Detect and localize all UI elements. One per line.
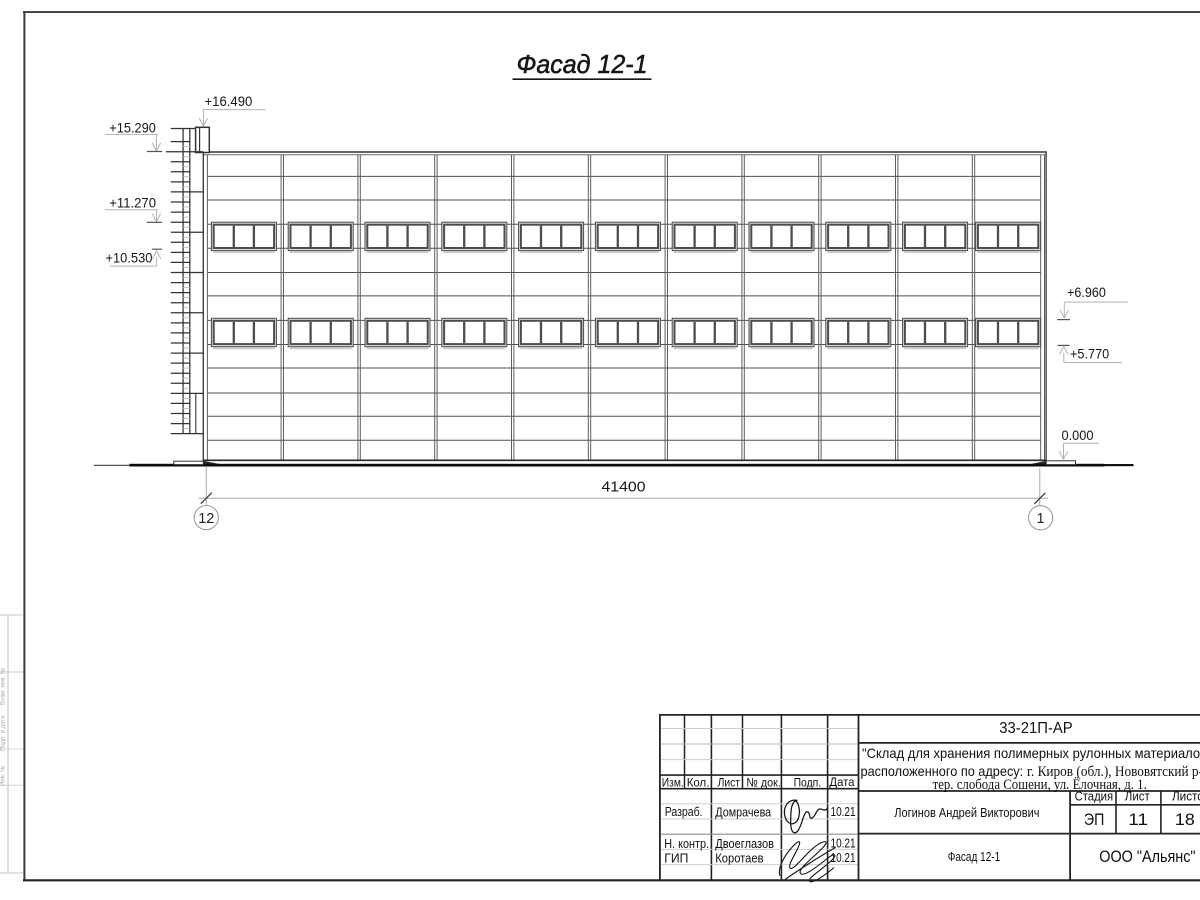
svg-text:Логинов Андрей Викторович: Логинов Андрей Викторович [894, 805, 1039, 820]
svg-text:Подп.: Подп. [794, 775, 822, 789]
svg-text:ООО "Альянс": ООО "Альянс" [1099, 848, 1195, 866]
svg-text:1: 1 [1037, 511, 1045, 527]
svg-text:0.000: 0.000 [1062, 428, 1094, 443]
svg-text:33-21П-АР: 33-21П-АР [999, 720, 1072, 737]
svg-text:ЭП: ЭП [1084, 810, 1104, 829]
svg-text:+10.530: +10.530 [106, 250, 153, 265]
svg-text:Листов: Листов [1172, 790, 1200, 804]
svg-text:Дата: Дата [829, 775, 854, 789]
svg-text:Н. контр.: Н. контр. [664, 836, 709, 851]
svg-text:+15.290: +15.290 [109, 120, 156, 135]
svg-text:Разраб.: Разраб. [665, 804, 703, 819]
svg-text:Стадия: Стадия [1075, 790, 1114, 804]
svg-text:Взам. инв. №: Взам. инв. № [0, 668, 7, 705]
svg-text:Лист: Лист [718, 775, 741, 789]
svg-text:Фасад 12-1: Фасад 12-1 [948, 849, 1001, 864]
svg-text:Инв. №: Инв. № [0, 765, 7, 786]
svg-text:Лист: Лист [1125, 790, 1150, 804]
svg-text:18: 18 [1175, 810, 1195, 829]
svg-text:11: 11 [1128, 810, 1148, 829]
svg-text:Коротаев: Коротаев [715, 851, 763, 866]
svg-text:+16.490: +16.490 [205, 94, 253, 109]
svg-text:+6.960: +6.960 [1067, 285, 1106, 300]
svg-text:Фасад 12-1: Фасад 12-1 [517, 49, 648, 79]
svg-text:№ док.: № док. [746, 775, 780, 789]
svg-text:12: 12 [198, 511, 214, 527]
svg-text:+11.270: +11.270 [109, 196, 156, 211]
svg-text:Кол.: Кол. [687, 775, 710, 789]
svg-text:10.21: 10.21 [831, 804, 856, 819]
svg-text:тер. слобода Сошени, ул. Ёлочн: тер. слобода Сошени, ул. Ёлочная, д. 1. [933, 776, 1147, 793]
svg-text:ГИП: ГИП [664, 850, 688, 865]
svg-text:Изм.: Изм. [662, 775, 684, 789]
svg-text:41400: 41400 [602, 478, 646, 495]
svg-text:Двоеглазов: Двоеглазов [715, 836, 774, 851]
svg-text:Домрачева: Домрачева [715, 804, 772, 819]
svg-text:Подп. и дата: Подп. и дата [1, 715, 7, 751]
svg-text:"Склад для хранения полимерных: "Склад для хранения полимерных рулонных … [862, 746, 1200, 761]
svg-text:+5.770: +5.770 [1070, 347, 1109, 362]
